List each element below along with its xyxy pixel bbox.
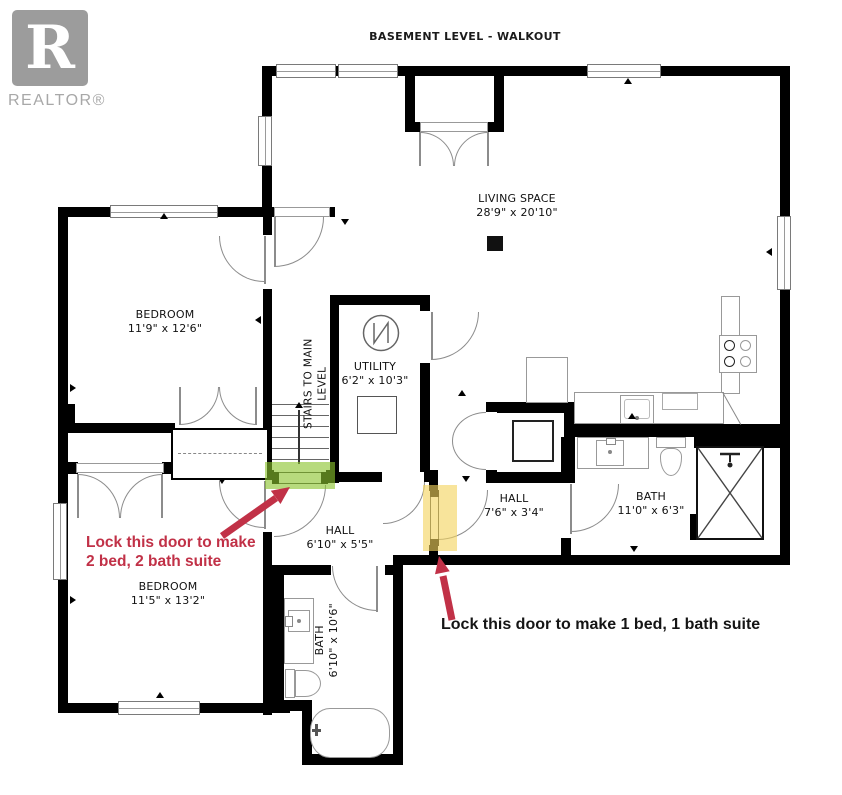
door-arc (78, 474, 120, 518)
room-dims: 6'2" x 10'3" (327, 374, 423, 388)
wall-segment (780, 66, 790, 565)
threshold-marker (156, 692, 164, 698)
faucet-icon (606, 438, 616, 445)
burner-icon (740, 340, 751, 351)
wall-segment (694, 424, 790, 448)
door-leaf (77, 474, 79, 518)
door-leaf (419, 132, 421, 166)
room-name: HALL (454, 492, 574, 506)
drain-icon (297, 619, 301, 623)
door-leaf (264, 236, 266, 284)
door-arc (431, 312, 479, 360)
room-name: BEDROOM (95, 308, 235, 322)
logo-label: REALTOR® (8, 92, 106, 110)
room-dims: 11'5" x 13'2" (98, 594, 238, 608)
room-dims: 11'0" x 6'3" (591, 504, 711, 518)
wall-segment (393, 555, 403, 765)
support-post (487, 236, 503, 251)
door-leaf (487, 132, 489, 166)
window (338, 64, 398, 78)
door-leaf (179, 387, 181, 425)
window (276, 64, 336, 78)
wall-segment (58, 462, 78, 474)
wall-segment (271, 565, 331, 575)
door-arc (454, 132, 488, 166)
wall-segment (405, 122, 420, 132)
door-opening (382, 472, 424, 482)
door-arc (274, 217, 324, 267)
threshold-marker (70, 596, 76, 604)
under-stair-storage (171, 428, 269, 480)
burner-icon (724, 340, 735, 351)
room-label-bedroom-upper: BEDROOM 11'9" x 12'6" (95, 308, 235, 337)
logo-r-icon: R (25, 18, 75, 78)
wall-segment (420, 295, 430, 311)
toilet-icon (656, 437, 686, 448)
burner-icon (740, 356, 751, 367)
door-arc (452, 412, 486, 441)
window (777, 216, 791, 290)
wall-segment (488, 122, 504, 132)
room-label-utility: UTILITY 6'2" x 10'3" (327, 360, 423, 389)
threshold-marker (341, 219, 349, 225)
room-name: BEDROOM (98, 580, 238, 594)
door-opening (420, 311, 430, 363)
wall-segment (339, 472, 382, 482)
fridge (526, 357, 568, 403)
drain-icon (608, 450, 612, 454)
threshold-marker (70, 384, 76, 392)
door-opening (486, 412, 497, 470)
burner-icon (724, 356, 735, 367)
wall-segment (330, 295, 430, 305)
door-leaf (431, 312, 433, 360)
room-dims: 6'10" x 10'6" (328, 583, 342, 698)
window (53, 503, 67, 580)
storage-dashed-line (178, 453, 262, 454)
room-name: STAIRS TO MAIN LEVEL (302, 322, 329, 446)
door-arc (420, 132, 454, 166)
room-label-hall-right: HALL 7'6" x 3'4" (454, 492, 574, 521)
water-heater-icon (362, 314, 400, 352)
threshold-marker (160, 213, 168, 219)
dishwasher (662, 393, 698, 410)
door-opening (420, 122, 488, 132)
storage-room-inner (512, 420, 554, 462)
room-name: BATH (591, 490, 711, 504)
threshold-marker (462, 476, 470, 482)
threshold-marker (628, 413, 636, 419)
furnace-icon (357, 396, 397, 434)
wall-segment (272, 575, 284, 710)
red-arrow-to-green-door (200, 478, 300, 548)
threshold-marker (766, 248, 772, 256)
door-leaf (255, 387, 257, 425)
door-arc (452, 441, 486, 470)
room-name: UTILITY (327, 360, 423, 374)
door-arc (219, 236, 264, 282)
faucet-icon (285, 616, 293, 627)
door-leaf (274, 217, 276, 267)
room-dims: 11'9" x 12'6" (95, 322, 235, 336)
kitchen-counter-corner (722, 392, 741, 425)
door-opening (274, 207, 330, 217)
door-arc (120, 474, 162, 518)
stair-tread (272, 459, 329, 460)
room-label-bedroom-lower: BEDROOM 11'5" x 13'2" (98, 580, 238, 609)
bathtub-icon (310, 708, 390, 758)
tub-faucet-icon (315, 724, 318, 736)
door-arc (180, 387, 219, 425)
threshold-marker (624, 78, 632, 84)
wall-segment (58, 207, 68, 713)
stair-tread (272, 448, 329, 449)
room-dims: 7'6" x 3'4" (454, 506, 574, 520)
room-label-bath-lower: BATH 6'10" x 10'6" (313, 583, 342, 698)
annotation-suite1: Lock this door to make 1 bed, 1 bath sui… (441, 616, 761, 634)
realtor-logo: R (12, 10, 88, 86)
room-label-bath-right: BATH 11'0" x 6'3" (591, 490, 711, 519)
door-leaf (376, 566, 378, 612)
room-dims: 28'9" x 20'10" (437, 206, 597, 220)
page-title: BASEMENT LEVEL - WALKOUT (330, 30, 600, 43)
wall-segment (58, 423, 175, 433)
toilet-bowl-icon (660, 448, 682, 476)
room-label-living: LIVING SPACE 28'9" x 20'10" (437, 192, 597, 221)
red-arrow-to-yellow-door (418, 548, 468, 628)
window (587, 64, 661, 78)
yellow-door-highlight (423, 485, 457, 551)
room-name: BATH (313, 583, 327, 698)
room-label-stairs: STAIRS TO MAIN LEVEL (302, 322, 329, 446)
threshold-marker (458, 390, 466, 396)
stairs-up-arrow (298, 410, 300, 464)
wall-segment (486, 402, 575, 413)
door-opening (76, 463, 164, 473)
door-arc (219, 387, 257, 425)
window (258, 116, 272, 166)
threshold-marker (630, 546, 638, 552)
threshold-marker (255, 316, 261, 324)
window (118, 701, 200, 715)
door-arc (383, 482, 425, 524)
toilet-icon (285, 669, 295, 698)
door-leaf (161, 474, 163, 518)
floor-plan: R REALTOR® BASEMENT LEVEL - WALKOUT (0, 0, 842, 795)
room-name: LIVING SPACE (437, 192, 597, 206)
wall-pier (58, 404, 75, 424)
annotation-line: 2 bed, 2 bath suite (86, 552, 276, 571)
